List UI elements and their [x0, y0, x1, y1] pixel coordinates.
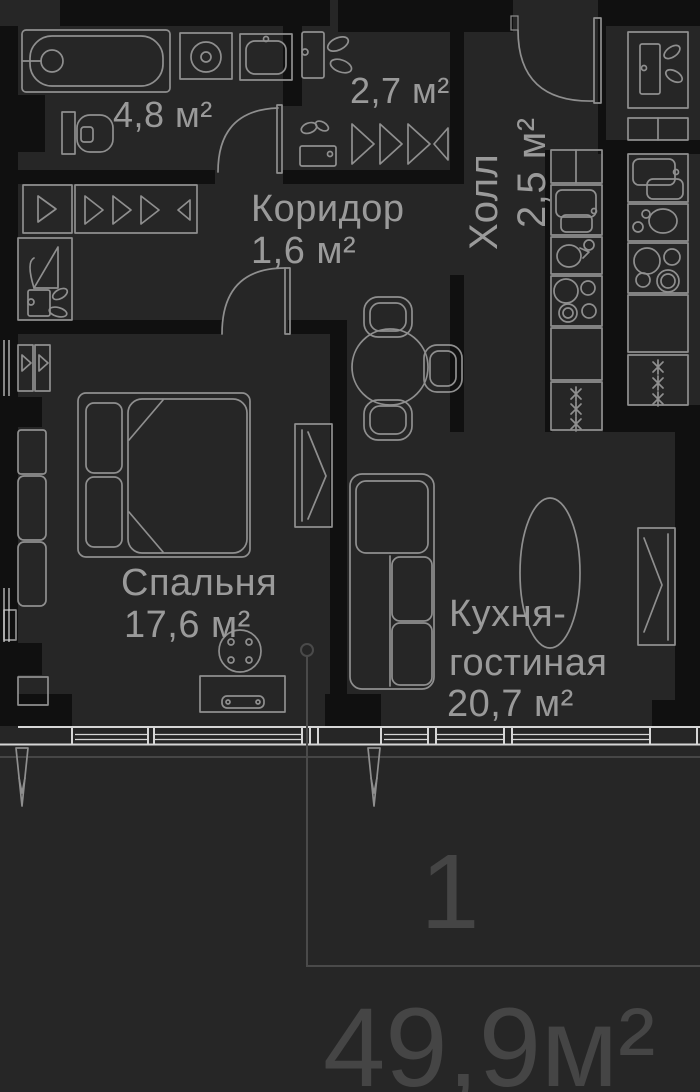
kitchen-living-name-label: Кухня-: [449, 593, 566, 635]
toilet-icon: [62, 112, 113, 154]
kitchen-living-name-label-2: гостиная: [449, 642, 608, 684]
bedroom-tv-panel-icon: [295, 424, 332, 527]
hatch-marks-icon: [653, 360, 663, 406]
corridor-area-label: 1,6 м²: [251, 230, 356, 272]
unit-total-area: 49,9м²: [323, 985, 655, 1092]
bedroom-area-label: 17,6 м²: [124, 604, 251, 646]
kitchen-cabinets-icon: [551, 150, 602, 431]
shoe-cabinet-icon: [18, 238, 72, 320]
desk-icon: [200, 676, 285, 712]
bedroom-name-label: Спальня: [121, 562, 277, 604]
kitchen-living-area-label: 20,7 м²: [447, 683, 574, 725]
bathroom-door-icon: [218, 105, 282, 173]
floor-plan-drawing: 4,8 м² 2,7 м² Коридор 1,6 м² Холл 2,5 м²…: [0, 0, 700, 1092]
balcony-door-icon: [638, 528, 675, 645]
bathroom-area-label: 4,8 м²: [113, 94, 213, 135]
sofa-icon: [350, 474, 434, 689]
corridor-name-label: Коридор: [251, 188, 405, 230]
hall-area-label: 2,5 м²: [510, 117, 554, 228]
floor-plan: 4,8 м² 2,7 м² Коридор 1,6 м² Холл 2,5 м²…: [0, 0, 700, 1092]
neighbor-kitchen-icon: [628, 32, 688, 406]
entrance-door-icon: [511, 16, 601, 103]
hall-name-label: Холл: [462, 154, 506, 250]
hatch-marks-icon: [571, 387, 581, 431]
washing-machine-icon: [180, 33, 232, 79]
bed-icon: [78, 393, 250, 557]
leader-dot-icon: [301, 644, 313, 656]
unit-rooms-count: 1: [421, 833, 480, 951]
bathtub-icon: [22, 30, 170, 92]
dining-table-icon: [352, 297, 462, 440]
bedroom-door-icon: [222, 268, 290, 334]
corridor-wardrobe-icon: [23, 185, 197, 233]
wardrobe-area-label: 2,7 м²: [350, 70, 450, 111]
